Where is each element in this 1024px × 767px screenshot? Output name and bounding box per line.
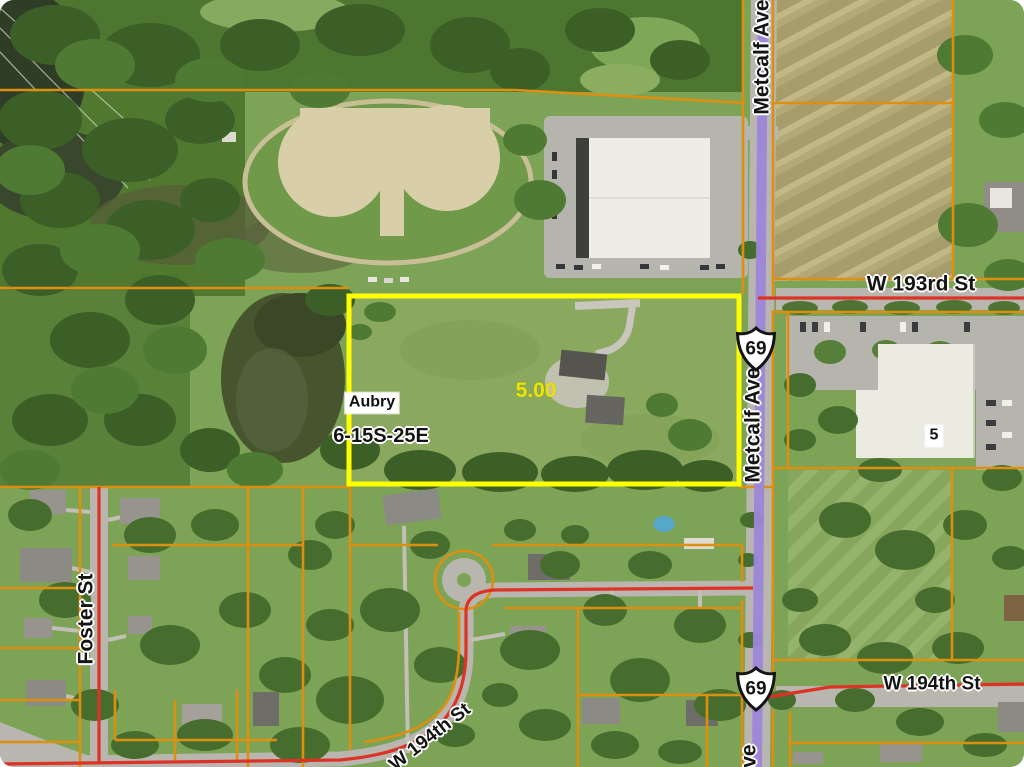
us-69-shield-south-number: 69 <box>745 679 766 700</box>
acreage-label: 5.00 <box>516 379 557 403</box>
street-label-metcalf-ave-top: Metcalf Ave <box>752 0 773 115</box>
aerial-map[interactable]: Metcalf Ave Metcalf Ave Metcalf Ave W 19… <box>0 0 1024 767</box>
section-township-range-label: 6-15S-25E <box>333 426 429 446</box>
street-label-w-194th-st-east: W 194th St <box>883 675 980 694</box>
us-69-shield-south: 69 <box>735 665 777 713</box>
us-69-shield-north-number: 69 <box>745 339 766 360</box>
street-label-w-193rd-st: W 193rd St <box>867 274 976 295</box>
owner-label: Aubry <box>345 393 399 414</box>
street-label-metcalf-ave-mid: Metcalf Ave <box>743 367 764 482</box>
us-69-shield-north: 69 <box>735 325 777 373</box>
street-label-metcalf-ave-bottom: Metcalf Ave <box>739 744 760 767</box>
building-number-label: 5 <box>926 426 943 447</box>
street-label-foster-st: Foster St <box>76 573 97 664</box>
rec-center <box>544 116 748 278</box>
aerial-imagery <box>0 0 1024 767</box>
screenshot: Metcalf Ave Metcalf Ave Metcalf Ave W 19… <box>0 0 1024 767</box>
